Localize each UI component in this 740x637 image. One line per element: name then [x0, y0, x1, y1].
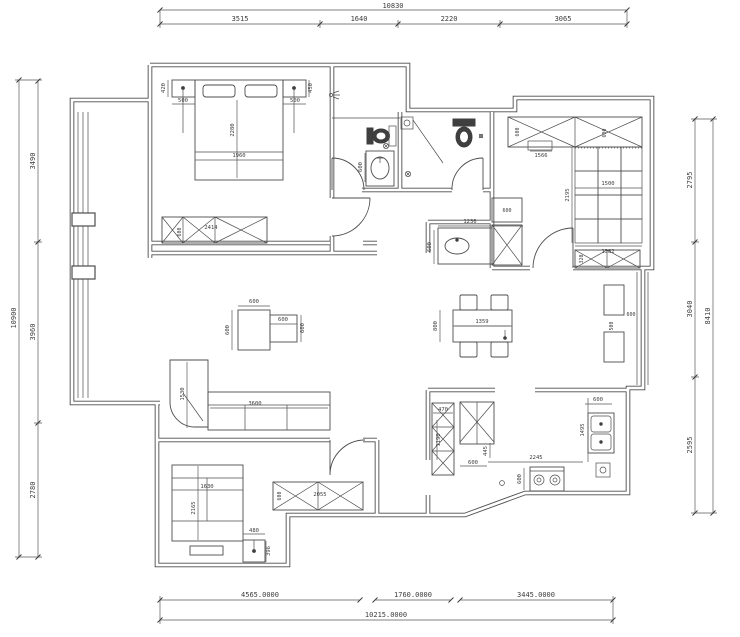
dim-label: 1640 [351, 15, 368, 23]
dim-label: 420 [161, 83, 167, 93]
dimension-chain-top: 10830 3515 1640 2220 3065 [158, 2, 630, 28]
walls [72, 65, 652, 565]
living-room [170, 310, 330, 430]
dimension-chain-right: 8410 2795 3040 2595 [686, 117, 717, 516]
faucet-icon [479, 134, 483, 138]
dim-label: 450 [308, 83, 314, 93]
bench [190, 546, 223, 555]
entry-cabinet [528, 141, 552, 150]
dim-label: 445 [483, 446, 489, 456]
dim-label: 500 [178, 98, 188, 104]
shower-room [401, 117, 483, 163]
dim-label: 1359 [475, 319, 488, 325]
dim-label: 800 [433, 321, 439, 331]
glass-partition [413, 120, 443, 163]
dim-label: 1190 [436, 433, 442, 446]
dim-label: 1566 [534, 153, 547, 159]
shower-room-door [452, 158, 483, 190]
dim-label: 2780 [29, 482, 37, 499]
kitchen [432, 402, 614, 491]
bed [172, 465, 243, 541]
dim-label: 600 [593, 397, 603, 403]
dim-label: 600 [225, 325, 231, 335]
dim-label: 2795 [686, 172, 694, 189]
dim-label: 1236 [463, 219, 476, 225]
dim-label: 3065 [555, 15, 572, 23]
dim-label: 600 [626, 312, 635, 318]
dim-label: 1960 [232, 153, 245, 159]
dim-label: 600 [177, 227, 183, 236]
doors [330, 158, 573, 475]
dim-label: 600 [278, 317, 288, 323]
floor-drain-icon [383, 143, 410, 176]
entry-door [533, 228, 573, 268]
dim-label: 396 [266, 546, 272, 556]
dim-label: 600 [468, 460, 478, 466]
dim-label: 1530 [180, 387, 186, 400]
pillow [245, 85, 277, 97]
dim-label: 2195 [565, 188, 571, 201]
shelf [389, 126, 396, 146]
parquet-floor [575, 147, 642, 243]
dim-label: 2414 [204, 225, 218, 231]
master-bedroom-door [332, 198, 370, 236]
lamp-icon [293, 87, 296, 90]
dim-label: 4565.0000 [241, 591, 279, 599]
dim-label: 600 [517, 474, 523, 484]
dim-label: 2280 [230, 123, 236, 136]
washbasin [366, 151, 394, 186]
dim-label: 600 [277, 491, 283, 500]
meter-box [596, 463, 610, 477]
dim-overall-top: 10830 [382, 2, 403, 10]
dim-overall-bottom: 10215.0000 [365, 611, 407, 619]
corner-sofa [170, 360, 330, 430]
dim-label: 500 [609, 321, 615, 330]
dim-label: 2595 [686, 437, 694, 454]
dim-label: 600 [502, 208, 511, 214]
fridge [460, 402, 494, 444]
nightstand [243, 540, 265, 562]
chair [491, 342, 508, 357]
balcony-window [72, 112, 95, 398]
dim-label: 600 [427, 242, 433, 252]
dim-label: 600 [249, 299, 259, 305]
lamp-icon [182, 87, 185, 90]
dim-label: 1760.0000 [394, 591, 432, 599]
dim-label: 600 [602, 128, 608, 137]
dim-label: 320 [579, 254, 585, 263]
dim-label: 2165 [191, 501, 197, 514]
wall-pier [72, 266, 95, 279]
dim-label: 1500 [601, 181, 614, 187]
dimension-chain-left: 10900 3490 3960 2780 [10, 78, 42, 560]
storage-cabinet [492, 225, 522, 265]
wall-cabinet [604, 332, 624, 362]
dim-label: 3445.0000 [517, 591, 555, 599]
bed [195, 80, 283, 180]
chair [460, 342, 477, 357]
dim-label: 1630 [200, 484, 213, 490]
chair [460, 295, 477, 310]
dim-label: 1495 [580, 423, 586, 436]
master-bedroom [162, 80, 306, 243]
dim-label: 3600 [248, 401, 261, 407]
floor-plan-drawing: 500 500 420 450 2280 1960 2414 600 600 6… [0, 0, 740, 637]
sink [588, 413, 614, 453]
vanity-counter [438, 228, 492, 264]
drain-box [401, 117, 413, 129]
dim-label: 600 [358, 162, 364, 172]
dim-label: 500 [290, 98, 300, 104]
dim-label: 3515 [232, 15, 249, 23]
dimension-chain-bottom: 4565.0000 1760.0000 3445.0000 10215.0000 [158, 591, 616, 624]
chair [491, 295, 508, 310]
dim-label: 3040 [686, 301, 694, 318]
wall-pier [72, 213, 95, 226]
wall-cabinet [604, 285, 624, 315]
dim-label: 470 [438, 407, 448, 413]
dim-label: 2055 [313, 492, 326, 498]
dim-label: 480 [249, 528, 259, 534]
floor-drain-icon [500, 481, 505, 486]
dim-label: 1382 [601, 249, 614, 255]
dim-label: 600 [515, 127, 521, 136]
dim-overall-left: 10900 [10, 307, 18, 328]
dim-label: 3490 [29, 153, 37, 170]
dim-label: 600 [300, 323, 306, 333]
dim-label: 2245 [529, 455, 542, 461]
dim-label: 2220 [441, 15, 458, 23]
tea-table [238, 310, 270, 350]
gas-stove [530, 467, 564, 491]
dim-overall-right: 8410 [704, 308, 712, 325]
entry-hall [508, 117, 642, 268]
toilet [453, 119, 475, 147]
bedroom2-door [330, 440, 365, 475]
toilet [367, 128, 390, 144]
dim-label: 3960 [29, 324, 37, 341]
floor-plan-canvas: 500 500 420 450 2280 1960 2414 600 600 6… [0, 0, 740, 637]
pillow [203, 85, 235, 97]
